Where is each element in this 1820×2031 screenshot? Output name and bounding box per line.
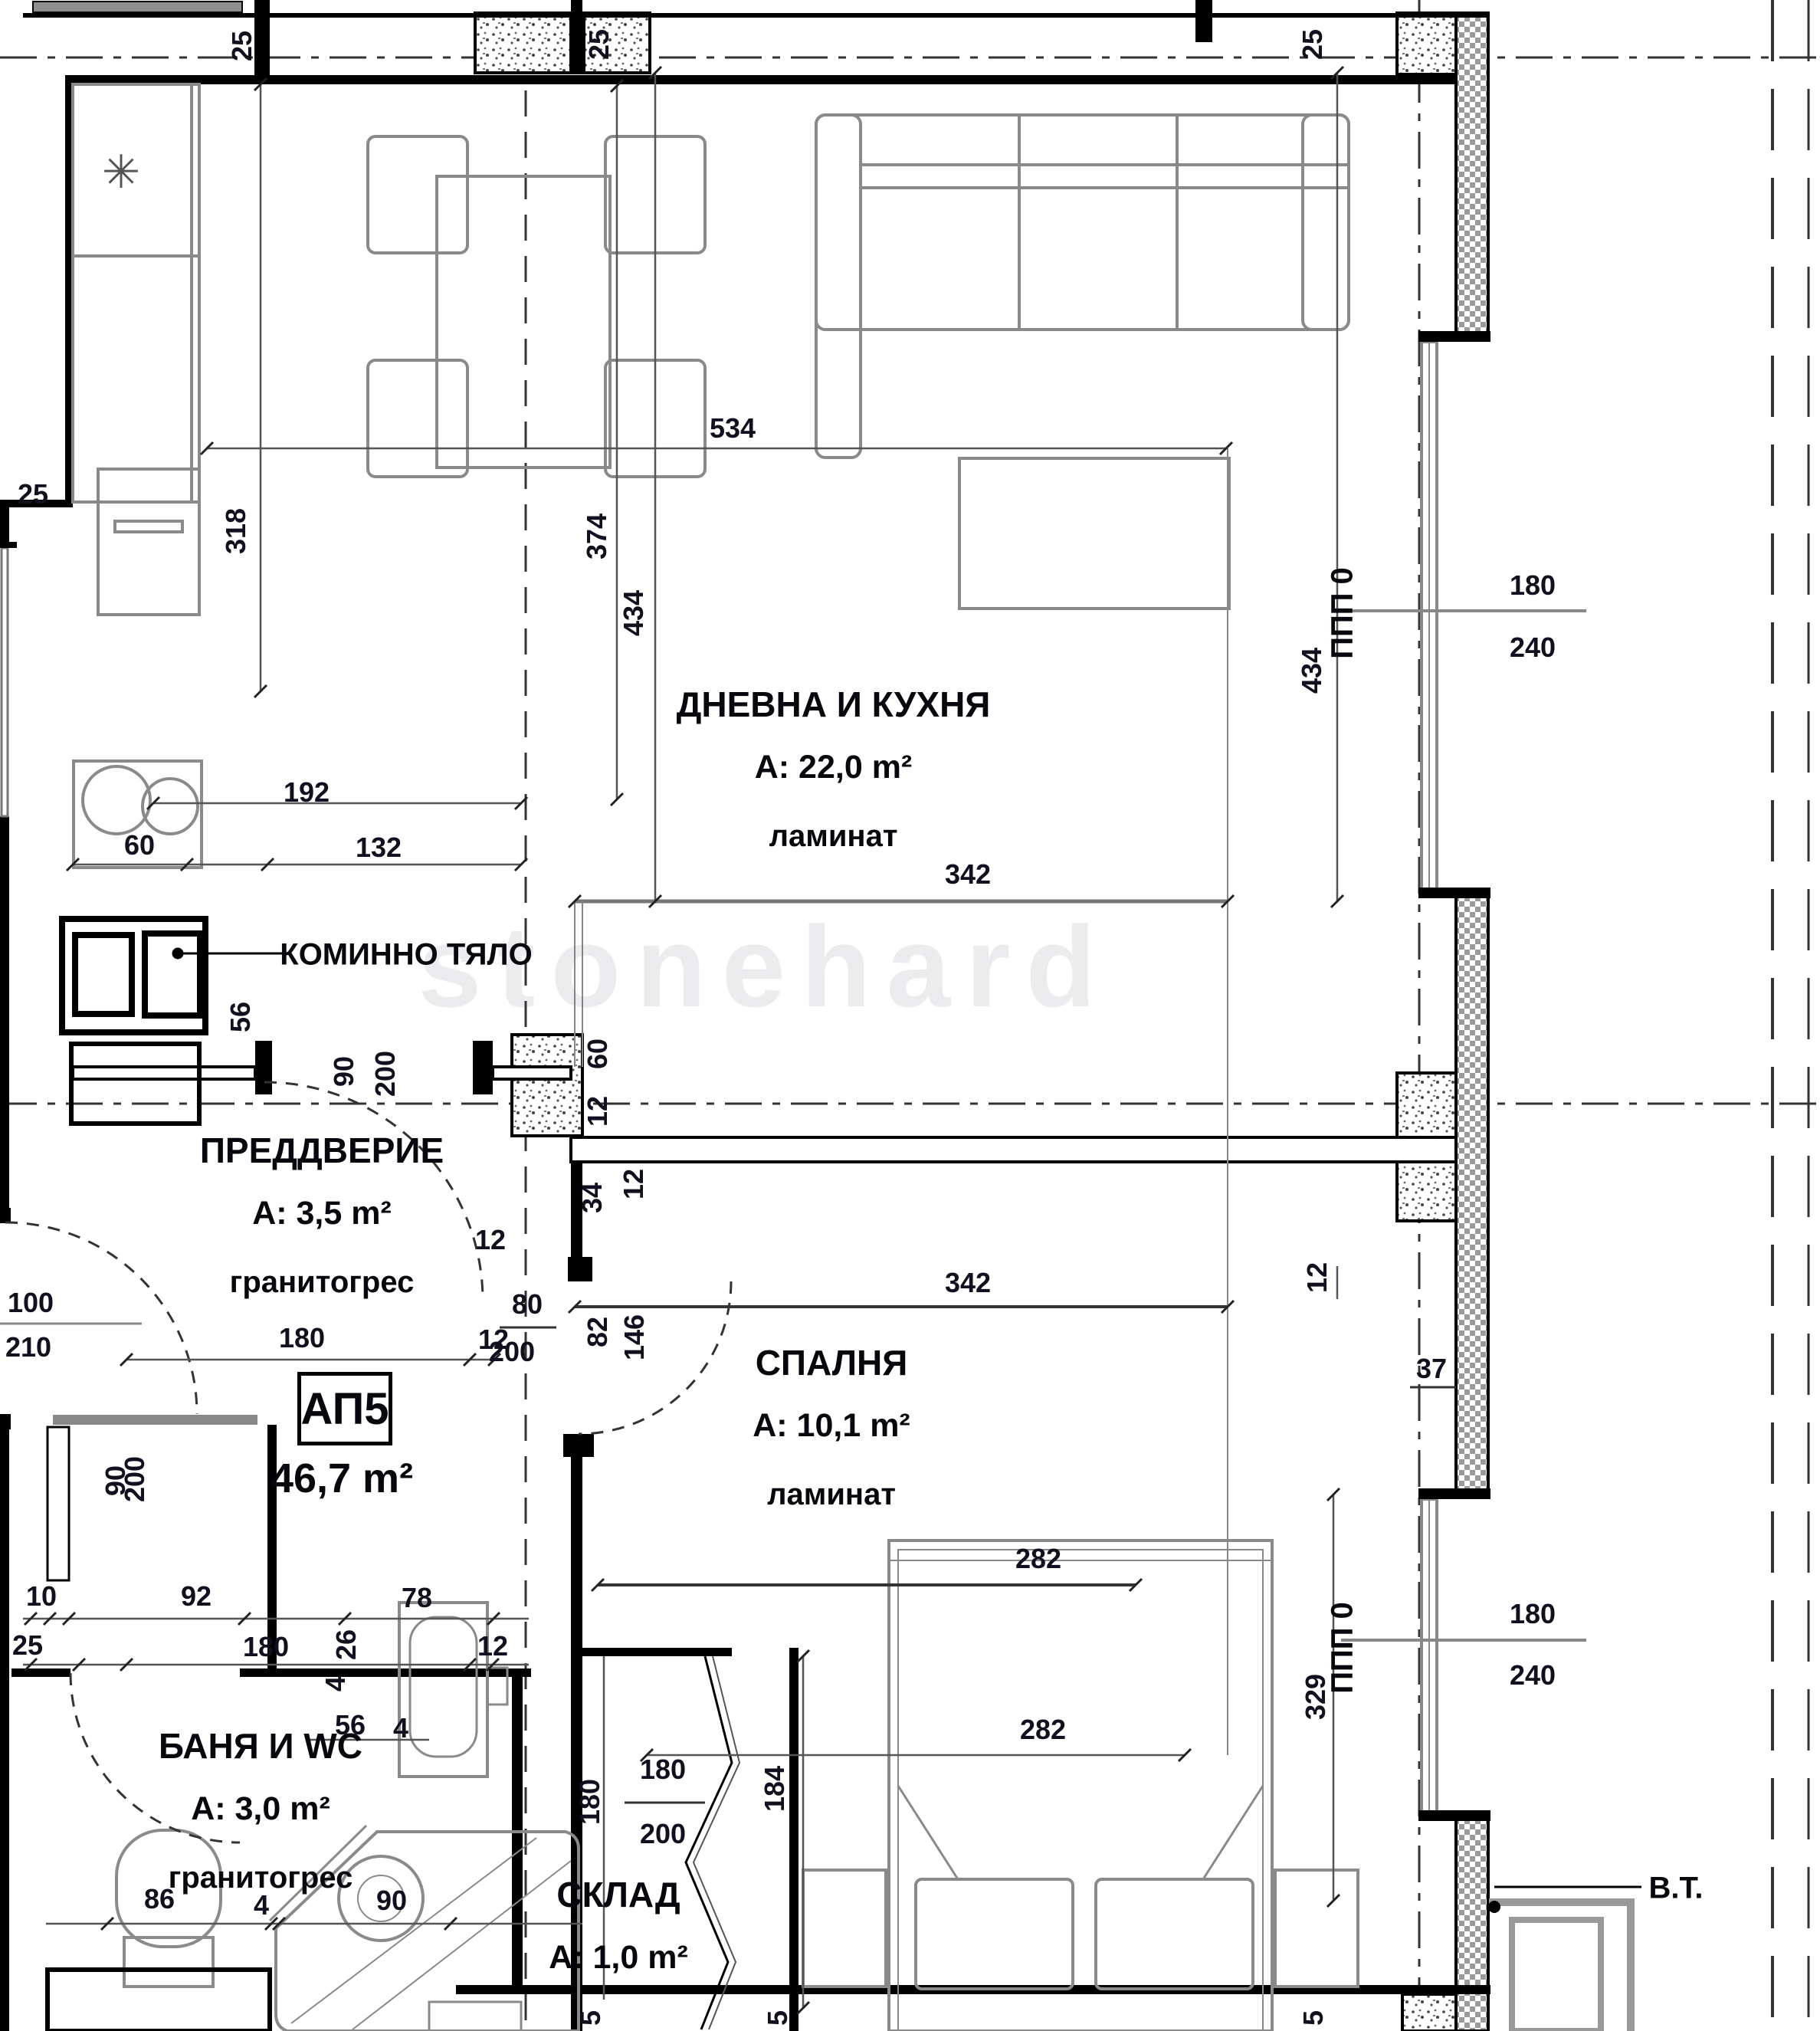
- dimension-label: 90: [376, 1885, 407, 1917]
- dimension-label: 26: [330, 1629, 362, 1660]
- bedroom-top-wall: [571, 1137, 1456, 1162]
- room-label-storage: СКЛАД A: 1,0 m²: [490, 1875, 746, 1976]
- dimension-label: 240: [1510, 632, 1556, 664]
- dimension-label: 180: [243, 1631, 289, 1663]
- dimension-label: 210: [5, 1331, 51, 1363]
- dimension-label: 184: [759, 1766, 791, 1812]
- floor-plan: stonehard ДНЕВНА И КУХНЯ A: 22,0 m² лами…: [0, 0, 1820, 2031]
- dimension-label: 12: [582, 1096, 614, 1127]
- dimension-label: 5: [762, 2010, 794, 2026]
- dimension-label: 4: [320, 1676, 352, 1691]
- room-label-vestibule: ПРЕДДВЕРИЕ A: 3,5 m² гранитогрес: [138, 1130, 506, 1299]
- hall-top-wall-left: [73, 1067, 255, 1079]
- dimension-label: 37: [1416, 1353, 1447, 1385]
- room-name: ДНЕВНА И КУХНЯ: [613, 684, 1054, 724]
- dimension-label: 434: [618, 590, 650, 636]
- dimension-label: 180: [279, 1322, 325, 1354]
- dimension-label: 60: [124, 829, 155, 861]
- dimension-label: 342: [945, 1267, 991, 1299]
- ppp-label-bedroom-window: ППП 0: [1326, 1602, 1360, 1694]
- dimension-label: 12: [1301, 1262, 1333, 1293]
- dimension-label: 25: [1297, 29, 1329, 60]
- dimension-label: 240: [1510, 1659, 1556, 1691]
- room-label-bedroom: СПАЛНЯ A: 10,1 m² ламинат: [651, 1343, 1012, 1511]
- dimension-label: 180: [574, 1779, 606, 1825]
- dimension-label: 12: [618, 1169, 650, 1199]
- room-area: A: 1,0 m²: [490, 1939, 746, 1976]
- vt-shaft-label: В.Т.: [1648, 1872, 1703, 1906]
- dimension-label: 100: [8, 1287, 54, 1319]
- dimension-label: 342: [945, 858, 991, 891]
- dimension-label: 25: [12, 1629, 43, 1662]
- dimension-label: 12: [477, 1630, 508, 1662]
- room-area: A: 22,0 m²: [613, 749, 1054, 786]
- dimension-label: 132: [356, 832, 402, 864]
- dimension-label: 200: [119, 1456, 151, 1502]
- dimension-label: 200: [640, 1818, 686, 1850]
- room-area: A: 10,1 m²: [651, 1407, 1012, 1444]
- dimension-label: 200: [369, 1051, 402, 1097]
- room-floor: гранитогрес: [138, 1265, 506, 1299]
- room-name: СПАЛНЯ: [651, 1343, 1012, 1383]
- dimension-label: 56: [225, 1002, 257, 1032]
- dimension-label: 92: [181, 1580, 212, 1613]
- dimension-label: 374: [581, 513, 613, 559]
- room-name: ПРЕДДВЕРИЕ: [138, 1130, 506, 1170]
- hall-bottom-wall: [53, 1415, 257, 1425]
- dimension-label: 90: [328, 1056, 360, 1087]
- room-name: БАНЯ И WC: [73, 1726, 448, 1766]
- hall-top-wall-right: [493, 1067, 571, 1079]
- dimension-label: 60: [582, 1038, 614, 1069]
- room-name: СКЛАД: [490, 1875, 746, 1915]
- neighbor-wall-strip: [33, 2, 242, 12]
- dimension-label: 180: [1510, 1598, 1556, 1630]
- chimney-body-label: КОМИННО ТЯЛО: [280, 938, 532, 973]
- dimension-label: 12: [475, 1224, 506, 1256]
- dimension-label: 4: [393, 1712, 408, 1744]
- room-label-bathroom: БАНЯ И WC A: 3,0 m² гранитогрес: [73, 1726, 448, 1895]
- ppp-label-living-window: ППП 0: [1326, 567, 1360, 659]
- dimension-label: 282: [1020, 1714, 1066, 1746]
- dimension-label: 34: [576, 1183, 608, 1213]
- dimension-label: 192: [284, 776, 330, 809]
- dimension-label: 282: [1015, 1543, 1061, 1575]
- dimension-label: 200: [489, 1336, 535, 1368]
- vt-shaft: [1488, 1887, 1641, 2031]
- dimension-label: 82: [582, 1317, 614, 1347]
- dimension-label: 78: [402, 1582, 432, 1614]
- dimension-label: 318: [220, 508, 252, 554]
- dimension-label: 10: [26, 1580, 57, 1613]
- dimension-label: 5: [1297, 2010, 1330, 2026]
- dimension-label: 56: [335, 1709, 366, 1741]
- dimension-label: 4: [254, 1889, 269, 1921]
- dimension-label: 25: [18, 478, 48, 510]
- dimension-label: 25: [226, 31, 258, 61]
- apartment-total-area: 46,7 m²: [271, 1455, 413, 1502]
- room-floor: ламинат: [613, 819, 1054, 853]
- apartment-id: АП5: [300, 1383, 389, 1435]
- dimension-label: 5: [575, 2010, 607, 2026]
- kitchen-symbol: ✳: [102, 146, 140, 199]
- room-label-living-kitchen: ДНЕВНА И КУХНЯ A: 22,0 m² ламинат: [613, 684, 1054, 853]
- apartment-id-box: АП5: [297, 1372, 392, 1445]
- room-area: A: 3,5 m²: [138, 1195, 506, 1232]
- dimension-label: 534: [710, 412, 756, 445]
- dimension-label: 146: [618, 1314, 651, 1360]
- room-area: A: 3,0 m²: [73, 1790, 448, 1827]
- dimension-label: 25: [583, 29, 615, 60]
- dimension-label: 434: [1296, 648, 1328, 694]
- room-floor: ламинат: [651, 1478, 1012, 1511]
- dimension-label: 80: [512, 1288, 543, 1321]
- dimension-label: 86: [144, 1883, 175, 1915]
- dimension-label: 180: [640, 1754, 686, 1786]
- dimension-label: 180: [1510, 569, 1556, 602]
